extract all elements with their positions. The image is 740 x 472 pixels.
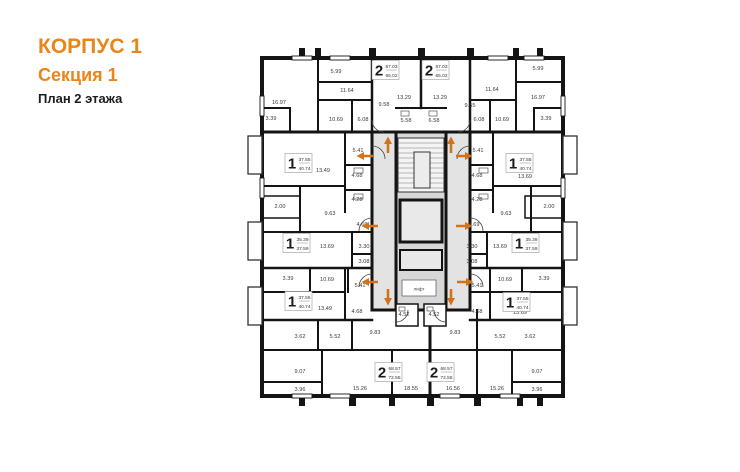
svg-text:57.03: 57.03 [435, 64, 447, 70]
room-area-label: 3.62 [525, 334, 536, 340]
apartment-badge: 137.5540.74 [503, 293, 530, 312]
room-area-label: 3.39 [266, 116, 277, 122]
room-area-label: 9.55 [465, 103, 476, 109]
svg-text:2: 2 [378, 365, 386, 382]
apartment-badge: 135.3937.59 [283, 234, 310, 253]
elevator-label: лифт [413, 287, 425, 292]
elevator-label-text: лифт [413, 287, 425, 292]
room-area-label: 5.99 [331, 69, 342, 75]
room-area-label: 9.63 [501, 211, 512, 217]
room-area-label: 16.97 [531, 95, 545, 101]
room-area-label: 2.00 [544, 204, 555, 210]
room-area-label: 3.39 [539, 276, 550, 282]
room-area-label: 3.39 [541, 116, 552, 122]
apartment-badge: 135.3937.59 [512, 234, 539, 253]
room-area-label: 3.39 [283, 276, 294, 282]
room-area-label: 5.58 [401, 118, 412, 124]
svg-text:37.55: 37.55 [519, 157, 531, 163]
room-area-label: 3.96 [532, 387, 543, 393]
svg-text:37.55: 37.55 [298, 157, 310, 163]
room-area-label: 4.28 [472, 197, 483, 203]
svg-text:40.74: 40.74 [298, 304, 310, 310]
room-area-label: 4.68 [352, 173, 363, 179]
svg-text:2: 2 [375, 63, 383, 80]
svg-text:1: 1 [288, 294, 296, 311]
svg-text:2: 2 [430, 365, 438, 382]
room-area-label: 6.58 [429, 118, 440, 124]
room-area-label: 5.41 [472, 283, 483, 289]
svg-text:40.74: 40.74 [516, 305, 528, 311]
room-area-label: 13.69 [493, 244, 507, 250]
room-area-label: 13.49 [318, 306, 332, 312]
room-area-label: 3.30 [359, 244, 370, 250]
floor-plan-drawing: 5.9911.6416.973.3910.696.085.4113.494.68… [0, 0, 740, 472]
svg-text:35.39: 35.39 [525, 237, 537, 243]
svg-text:2: 2 [425, 63, 433, 80]
room-area-label: 9.83 [450, 330, 461, 336]
room-area-label: 9.83 [370, 330, 381, 336]
room-area-label: 10.69 [498, 277, 512, 283]
svg-text:37.59: 37.59 [296, 246, 308, 252]
room-area-label: 4.68 [352, 309, 363, 315]
svg-text:37.59: 37.59 [525, 246, 537, 252]
svg-text:40.74: 40.74 [298, 166, 310, 172]
room-area-label: 15.26 [490, 386, 504, 392]
apartment-badge: 137.5540.74 [506, 154, 533, 173]
room-area-label: 5.52 [330, 334, 341, 340]
svg-text:65.02: 65.02 [385, 73, 397, 79]
svg-text:37.55: 37.55 [298, 295, 310, 301]
room-area-label: 18.55 [404, 386, 418, 392]
room-area-label: 9.07 [532, 369, 543, 375]
room-area-label: 6.08 [474, 117, 485, 123]
svg-text:1: 1 [288, 156, 296, 173]
room-area-label: 10.69 [495, 117, 509, 123]
svg-text:1: 1 [509, 156, 517, 173]
apartment-badge: 137.5540.74 [285, 292, 312, 311]
room-area-label: 5.41 [355, 283, 366, 289]
room-area-label: 10.69 [329, 117, 343, 123]
svg-text:1: 1 [506, 295, 514, 312]
svg-text:57.03: 57.03 [385, 64, 397, 70]
room-area-label: 5.99 [533, 66, 544, 72]
room-area-label: 13.29 [397, 95, 411, 101]
apartment-badge: 268.5772.55 [375, 363, 402, 382]
room-area-label: 13.69 [518, 174, 532, 180]
svg-text:68.57: 68.57 [388, 366, 400, 372]
room-area-label: 10.69 [320, 277, 334, 283]
room-area-label: 3.08 [467, 259, 478, 265]
svg-text:1: 1 [286, 236, 294, 253]
room-area-label: 4.68 [472, 309, 483, 315]
apartment-badge: 257.0365.02 [372, 61, 399, 80]
room-area-label: 3.08 [359, 259, 370, 265]
svg-text:65.02: 65.02 [435, 73, 447, 79]
room-area-label: 5.41 [473, 148, 484, 154]
svg-text:1: 1 [515, 236, 523, 253]
room-area-label: 9.07 [295, 369, 306, 375]
svg-text:72.55: 72.55 [388, 375, 400, 381]
room-area-label: 4.68 [472, 173, 483, 179]
apartment-badge: 268.5772.55 [427, 363, 454, 382]
room-area-label: 9.63 [325, 211, 336, 217]
room-area-label: 13.69 [320, 244, 334, 250]
room-area-label: 3.62 [295, 334, 306, 340]
svg-text:72.55: 72.55 [440, 375, 452, 381]
room-area-label: 11.64 [485, 87, 499, 93]
room-area-label: 3.96 [295, 387, 306, 393]
room-area-label: 16.97 [272, 100, 286, 106]
room-area-label: 4.52 [429, 312, 440, 318]
room-area-label: 15.26 [353, 386, 367, 392]
floor-plan-page: КОРПУС 1 Секция 1 План 2 этажа [0, 0, 740, 472]
room-area-label: 3.30 [467, 244, 478, 250]
room-area-label: 13.49 [316, 168, 330, 174]
room-area-label: 4.28 [352, 197, 363, 203]
svg-text:37.55: 37.55 [516, 296, 528, 302]
room-area-label: 6.08 [358, 117, 369, 123]
svg-text:68.57: 68.57 [440, 366, 452, 372]
room-area-label: 9.58 [379, 102, 390, 108]
svg-text:40.74: 40.74 [519, 166, 531, 172]
room-area-label: 13.29 [433, 95, 447, 101]
room-area-label: 11.64 [340, 88, 354, 94]
room-area-label: 4.52 [399, 312, 410, 318]
staircase [398, 138, 444, 192]
apartment-badge: 137.5540.74 [285, 154, 312, 173]
room-area-label: 5.52 [495, 334, 506, 340]
room-area-label: 16.56 [446, 386, 460, 392]
svg-text:35.39: 35.39 [296, 237, 308, 243]
room-area-label: 2.00 [275, 204, 286, 210]
apartment-badge: 257.0365.02 [422, 61, 449, 80]
room-area-label: 5.41 [353, 148, 364, 154]
